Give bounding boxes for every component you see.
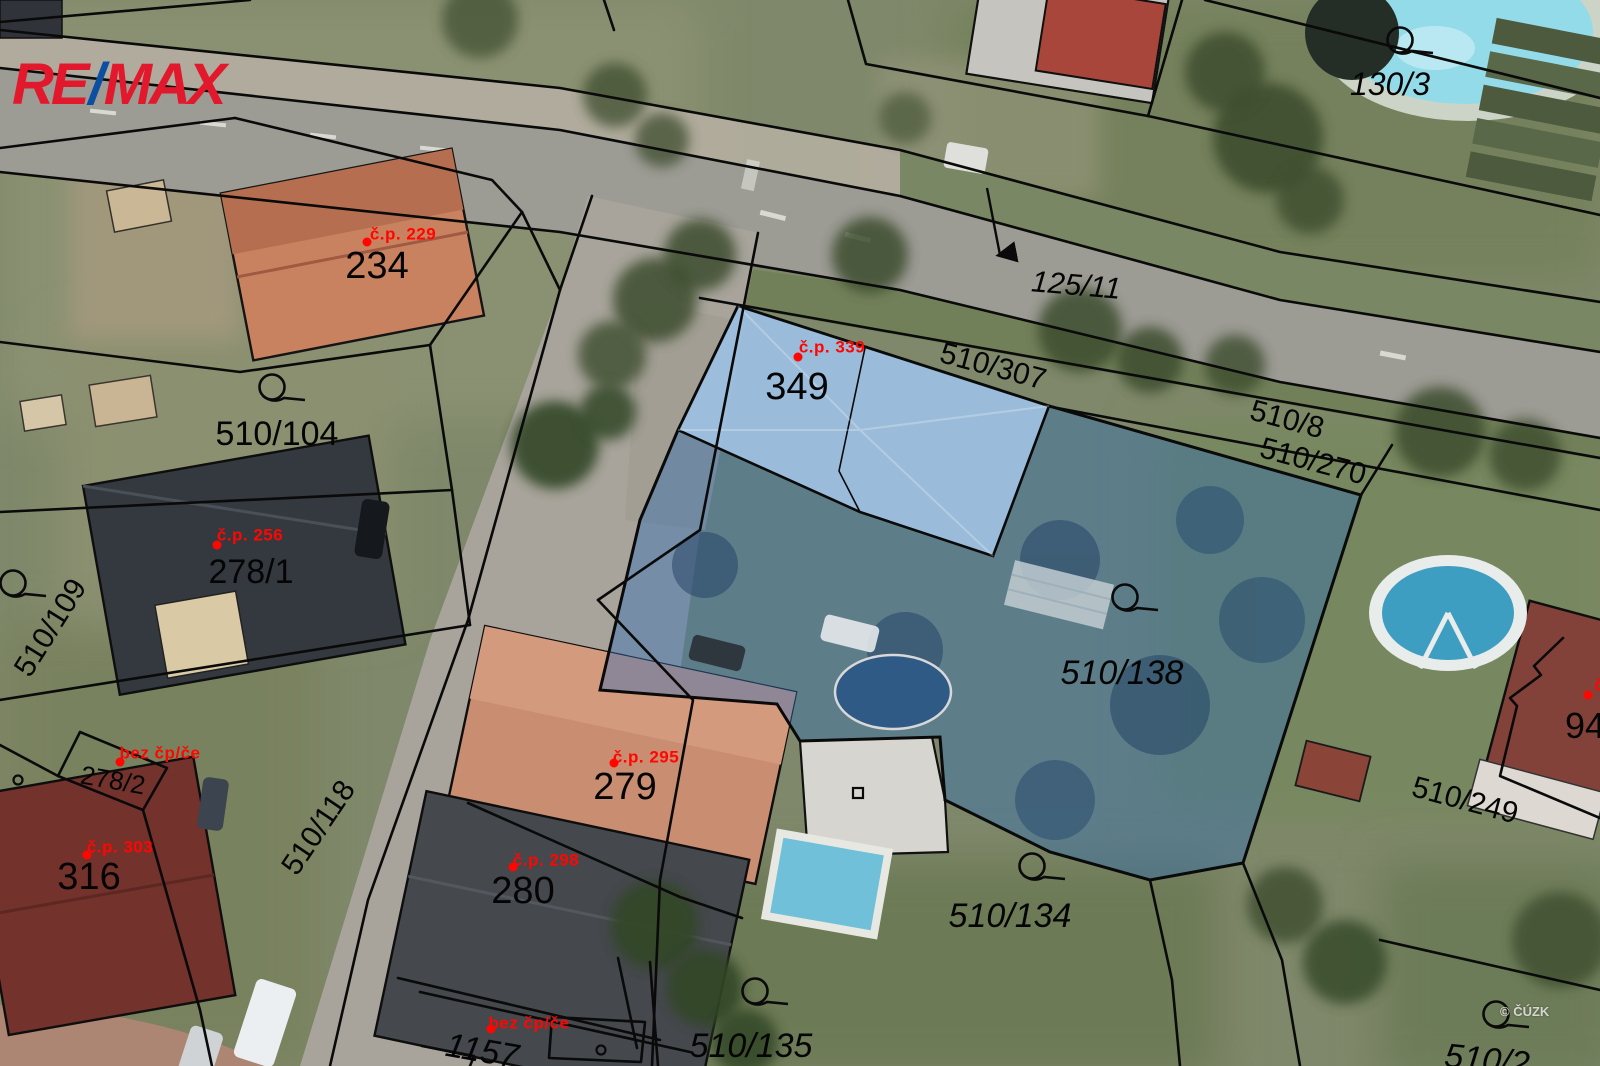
pool-right xyxy=(1369,555,1527,671)
remax-logo-max: MAX xyxy=(104,52,224,117)
remax-logo: RE/MAX xyxy=(12,56,224,114)
cadastral-map-image: 234349125/11510/307510/8510/270130/3510/… xyxy=(0,0,1600,1066)
remax-logo-re: RE xyxy=(12,52,87,117)
remax-logo-slash: / xyxy=(87,52,104,117)
pool-in-parcel xyxy=(835,655,951,729)
cuzk-watermark: © ČÚZK xyxy=(1500,1004,1549,1019)
cadastral-map-canvas xyxy=(0,0,1600,1066)
